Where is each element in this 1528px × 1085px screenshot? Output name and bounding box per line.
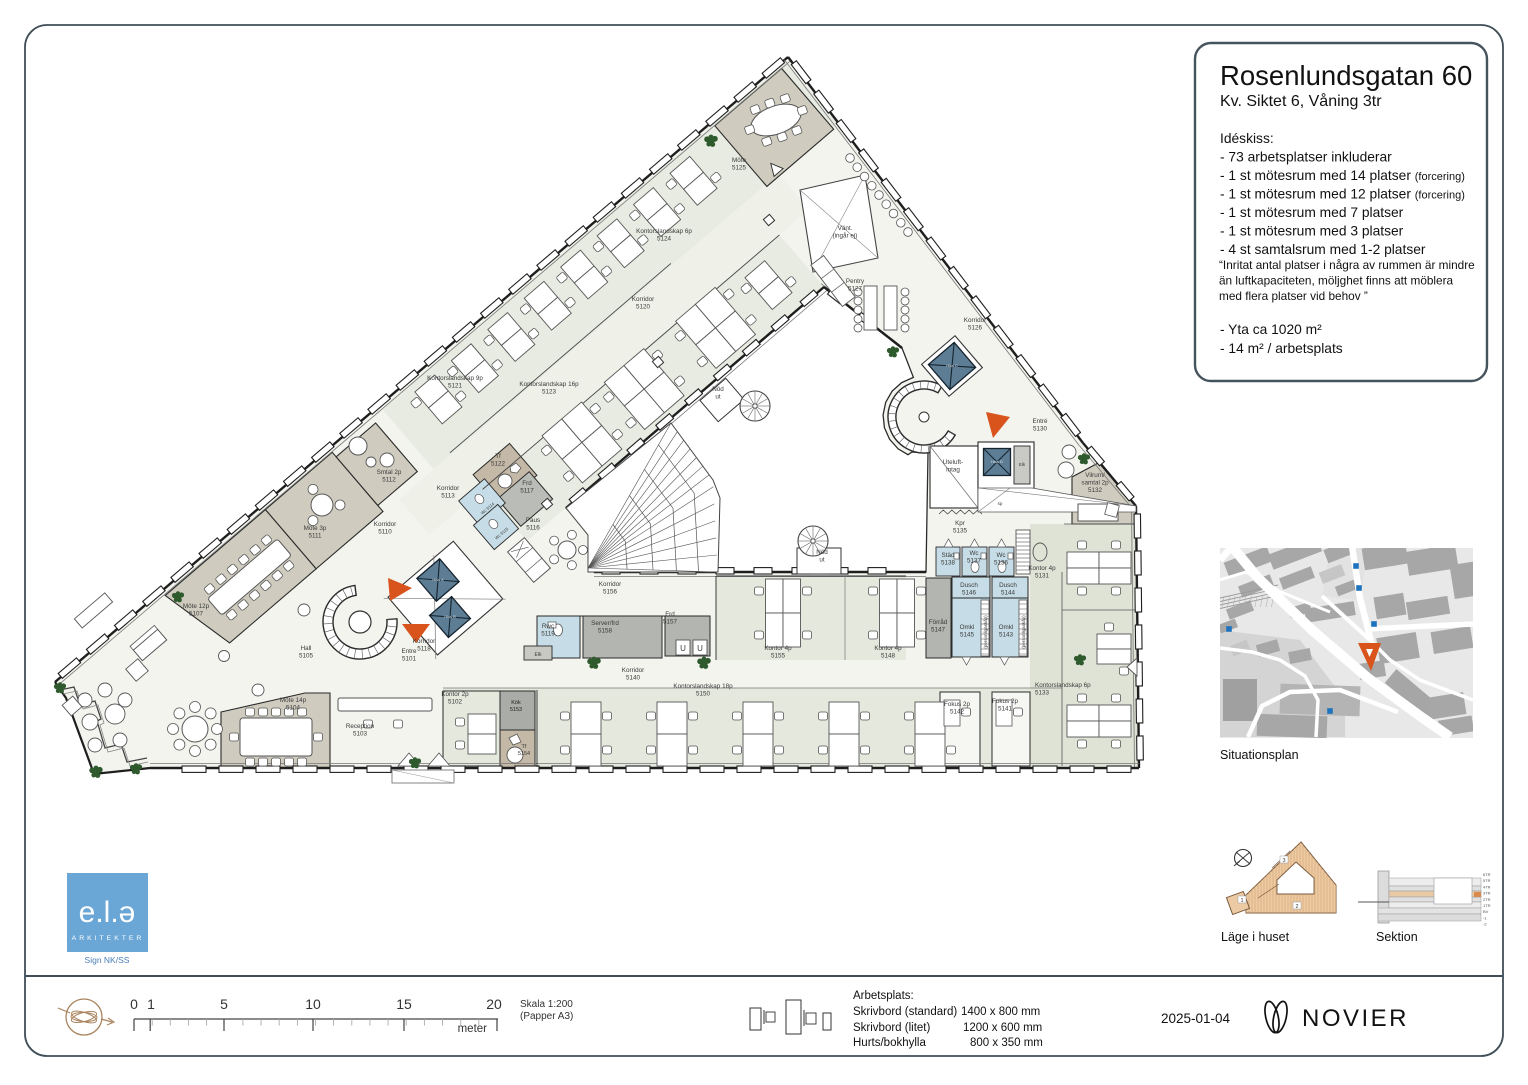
svg-text:Korridor: Korridor <box>622 667 644 674</box>
svg-text:5125: 5125 <box>732 165 747 172</box>
svg-text:Smtal 2p: Smtal 2p <box>377 469 402 476</box>
svg-text:5157: 5157 <box>663 619 678 626</box>
svg-text:Arbetsplats:: Arbetsplats: <box>853 990 914 1002</box>
svg-text:Förråd: Förråd <box>929 618 948 626</box>
svg-text:1: 1 <box>1240 898 1243 904</box>
svg-text:1: 1 <box>147 996 155 1012</box>
svg-text:5153: 5153 <box>510 707 522 713</box>
svg-text:Korridor: Korridor <box>599 581 621 588</box>
svg-text:Dusch: Dusch <box>999 582 1017 589</box>
svg-text:15: 15 <box>396 996 412 1012</box>
svg-text:5121: 5121 <box>448 383 463 390</box>
svg-text:5117: 5117 <box>520 488 534 495</box>
svg-text:sp: sp <box>998 501 1003 506</box>
svg-text:meter: meter <box>458 1023 488 1035</box>
svg-text:Pentry: Pentry <box>846 278 865 285</box>
svg-text:U: U <box>680 644 686 653</box>
svg-text:5156: 5156 <box>603 589 618 596</box>
svg-text:Läge i huset: Läge i huset <box>1221 930 1290 944</box>
svg-text:(personligaskåp): (personligaskåp) <box>982 615 988 649</box>
svg-text:Kontor 4p: Kontor 4p <box>764 645 792 652</box>
svg-text:5103: 5103 <box>353 731 368 738</box>
svg-text:5137: 5137 <box>967 558 982 565</box>
svg-text:Idéskiss:: Idéskiss: <box>1220 131 1274 146</box>
svg-text:5135: 5135 <box>953 528 968 535</box>
svg-text:Kv. Siktet 6, Våning 3tr: Kv. Siktet 6, Våning 3tr <box>1220 92 1382 110</box>
svg-text:Kontor 4p: Kontor 4p <box>1028 565 1056 572</box>
svg-text:- 14 m² / arbetsplats: - 14 m² / arbetsplats <box>1220 341 1343 356</box>
svg-text:Kontor 2p: Kontor 2p <box>441 691 469 698</box>
svg-text:5143: 5143 <box>999 632 1014 639</box>
svg-text:5131: 5131 <box>1035 573 1050 580</box>
svg-text:Möte: Möte <box>732 157 746 164</box>
svg-text:5118: 5118 <box>417 646 431 653</box>
svg-text:4TR: 4TR <box>1483 884 1491 889</box>
svg-text:Rosenlundsgatan 60: Rosenlundsgatan 60 <box>1220 60 1472 91</box>
svg-text:2: 2 <box>1295 904 1298 910</box>
svg-text:Sign NK/SS: Sign NK/SS <box>85 955 130 965</box>
svg-text:1200 x 600 mm: 1200 x 600 mm <box>963 1022 1042 1034</box>
svg-text:Elk: Elk <box>535 652 542 658</box>
svg-text:Möte 12p: Möte 12p <box>183 603 210 610</box>
svg-text:5140: 5140 <box>626 675 641 682</box>
svg-text:Sektion: Sektion <box>1376 930 1418 944</box>
svg-text:Korridor: Korridor <box>374 521 396 528</box>
svg-text:Omkl: Omkl <box>960 624 975 631</box>
svg-text:Hall: Hall <box>301 645 312 652</box>
svg-text:- 73 arbetsplatser inkluderar: - 73 arbetsplatser inkluderar <box>1220 150 1392 165</box>
svg-text:5133: 5133 <box>1035 690 1050 697</box>
svg-text:“Inritat antal platser i några: “Inritat antal platser i några av rummen… <box>1219 258 1475 272</box>
svg-text:Frd: Frd <box>522 480 532 487</box>
svg-text:3TR: 3TR <box>1483 891 1491 896</box>
svg-text:Tf: Tf <box>495 453 501 460</box>
svg-text:Kontor 4p: Kontor 4p <box>874 645 902 652</box>
svg-text:5124: 5124 <box>657 236 672 243</box>
svg-text:Hiss D: Hiss D <box>991 459 1003 464</box>
svg-text:Kontorslandskap 9p: Kontorslandskap 9p <box>427 375 483 382</box>
svg-text:Fokus 2p: Fokus 2p <box>944 701 970 708</box>
svg-text:5120: 5120 <box>636 304 651 311</box>
svg-text:5119: 5119 <box>541 631 555 638</box>
svg-text:5150: 5150 <box>696 691 711 698</box>
svg-text:5112: 5112 <box>382 477 396 484</box>
svg-text:(ingår ej): (ingår ej) <box>833 232 858 240</box>
svg-text:Korridor: Korridor <box>413 638 435 645</box>
svg-text:med flera platser vid behov ”: med flera platser vid behov ” <box>1219 289 1368 303</box>
svg-text:5136: 5136 <box>994 560 1009 567</box>
svg-text:5105: 5105 <box>299 653 314 660</box>
svg-text:5141: 5141 <box>998 706 1013 713</box>
svg-text:5116: 5116 <box>526 525 540 532</box>
svg-text:800 x 350 mm: 800 x 350 mm <box>970 1037 1043 1049</box>
svg-text:BV: BV <box>1483 909 1489 914</box>
svg-text:Paus: Paus <box>526 517 540 524</box>
svg-text:5154: 5154 <box>518 751 530 757</box>
svg-text:Nöd: Nöd <box>816 549 828 556</box>
svg-text:än luftkapaciteten, möljghet f: än luftkapaciteten, möljghet finns att m… <box>1219 274 1454 288</box>
svg-text:Elk: Elk <box>1019 462 1026 467</box>
svg-text:10: 10 <box>305 996 321 1012</box>
svg-text:5148: 5148 <box>881 653 896 660</box>
svg-text:0: 0 <box>130 996 138 1012</box>
svg-text:Vänt.: Vänt. <box>838 225 853 232</box>
svg-text:Entré: Entré <box>1032 418 1048 425</box>
svg-text:Vilrum/: Vilrum/ <box>1085 472 1105 479</box>
svg-text:Korridor: Korridor <box>632 296 654 303</box>
svg-text:2025-01-04: 2025-01-04 <box>1161 1011 1231 1026</box>
svg-text:Kontorslandskap 6p: Kontorslandskap 6p <box>1035 682 1091 689</box>
svg-text:5TR: 5TR <box>1483 878 1491 883</box>
svg-text:5123: 5123 <box>542 389 557 396</box>
svg-text:Kontorslandskap 6p: Kontorslandskap 6p <box>636 228 692 235</box>
svg-text:Omkl: Omkl <box>999 624 1014 631</box>
svg-text:5104: 5104 <box>286 705 301 712</box>
svg-text:Reception: Reception <box>346 723 375 730</box>
svg-text:Uteluft-: Uteluft- <box>943 459 963 466</box>
svg-text:- 1 st mötesrum med 14 platser: - 1 st mötesrum med 14 platser (forcerin… <box>1220 168 1465 183</box>
svg-text:Kpr: Kpr <box>955 520 965 527</box>
svg-text:5111: 5111 <box>308 533 322 540</box>
svg-text:intag: intag <box>946 467 960 474</box>
svg-text:Entre: Entre <box>401 648 417 655</box>
svg-text:U: U <box>697 644 703 653</box>
svg-text:Kök: Kök <box>511 700 521 706</box>
svg-text:5138: 5138 <box>941 560 956 567</box>
svg-text:Kontorslandskap 16p: Kontorslandskap 16p <box>519 381 579 388</box>
svg-text:20: 20 <box>486 996 502 1012</box>
svg-text:e.l.ə: e.l.ə <box>79 896 136 929</box>
svg-text:Skrivbord (standard): Skrivbord (standard) <box>853 1006 957 1018</box>
svg-text:Fokus 2p: Fokus 2p <box>992 698 1018 705</box>
svg-text:5127: 5127 <box>848 286 863 293</box>
svg-text:samtal 2p: samtal 2p <box>1081 480 1109 487</box>
svg-text:(Papper A3): (Papper A3) <box>520 1011 573 1022</box>
svg-text:5: 5 <box>220 996 228 1012</box>
svg-text:Möte 14p: Möte 14p <box>280 697 307 704</box>
svg-text:5158: 5158 <box>598 628 613 635</box>
svg-text:- 1 st mötesrum med 3 platser: - 1 st mötesrum med 3 platser <box>1220 224 1404 239</box>
svg-text:5144: 5144 <box>1001 590 1016 597</box>
svg-text:Skala 1:200: Skala 1:200 <box>520 999 573 1010</box>
svg-text:- 1 st mötesrum med 12 platser: - 1 st mötesrum med 12 platser (forcerin… <box>1220 187 1465 202</box>
svg-text:5145: 5145 <box>960 632 975 639</box>
svg-text:5130: 5130 <box>1033 426 1048 433</box>
svg-text:Situationsplan: Situationsplan <box>1220 748 1299 762</box>
svg-text:Skrivbord (litet): Skrivbord (litet) <box>853 1022 930 1034</box>
svg-text:ut: ut <box>819 557 825 564</box>
svg-text:Hurts/bokhylla: Hurts/bokhylla <box>853 1037 926 1049</box>
svg-text:5147: 5147 <box>931 627 946 634</box>
svg-text:ARKITEKTER: ARKITEKTER <box>72 935 145 942</box>
svg-text:NOVIER: NOVIER <box>1302 1005 1409 1032</box>
svg-text:Hiss A: Hiss A <box>432 577 444 582</box>
svg-text:1400 x 800 mm: 1400 x 800 mm <box>961 1006 1040 1018</box>
svg-text:5102: 5102 <box>448 699 463 706</box>
svg-text:5101: 5101 <box>402 656 417 663</box>
svg-text:Dusch: Dusch <box>960 582 978 589</box>
svg-text:ut: ut <box>715 394 721 401</box>
svg-text:1TR: 1TR <box>1483 903 1491 908</box>
svg-text:Nöd: Nöd <box>712 386 724 393</box>
svg-text:Tf: Tf <box>522 744 527 750</box>
svg-text:Korridor: Korridor <box>964 317 986 324</box>
svg-text:5126: 5126 <box>968 325 983 332</box>
svg-text:Kontorslandskap 18p: Kontorslandskap 18p <box>673 683 733 690</box>
svg-text:- 1 st mötesrum med 7 platser: - 1 st mötesrum med 7 platser <box>1220 205 1404 220</box>
svg-text:Wc: Wc <box>969 550 978 557</box>
svg-text:Rwc: Rwc <box>542 623 554 630</box>
svg-text:- Yta ca 1020 m²: - Yta ca 1020 m² <box>1220 322 1322 337</box>
svg-text:2TR: 2TR <box>1483 897 1491 902</box>
svg-text:5122: 5122 <box>491 461 506 468</box>
svg-text:5107: 5107 <box>189 611 204 618</box>
svg-text:Server/frd: Server/frd <box>591 620 619 627</box>
svg-text:Städ: Städ <box>942 552 955 559</box>
svg-text:Frd: Frd <box>665 611 675 618</box>
svg-text:5113: 5113 <box>441 493 455 500</box>
svg-text:3: 3 <box>1282 858 1285 864</box>
svg-text:Wc: Wc <box>996 552 1005 559</box>
svg-text:5146: 5146 <box>962 590 977 597</box>
svg-text:5110: 5110 <box>378 529 392 536</box>
svg-text:5155: 5155 <box>771 653 786 660</box>
svg-text:Hiss C: Hiss C <box>946 363 958 368</box>
svg-text:5142: 5142 <box>950 709 965 716</box>
svg-text:5132: 5132 <box>1088 487 1103 494</box>
svg-text:Möte 3p: Möte 3p <box>304 525 327 532</box>
svg-text:Korridor: Korridor <box>437 485 459 492</box>
svg-text:(personligaskåp): (personligaskåp) <box>1020 615 1026 649</box>
svg-text:Hiss B: Hiss B <box>444 614 456 619</box>
svg-text:6TR: 6TR <box>1483 872 1491 877</box>
svg-text:- 4 st samtalsrum med 1-2 plat: - 4 st samtalsrum med 1-2 platser <box>1220 242 1426 257</box>
